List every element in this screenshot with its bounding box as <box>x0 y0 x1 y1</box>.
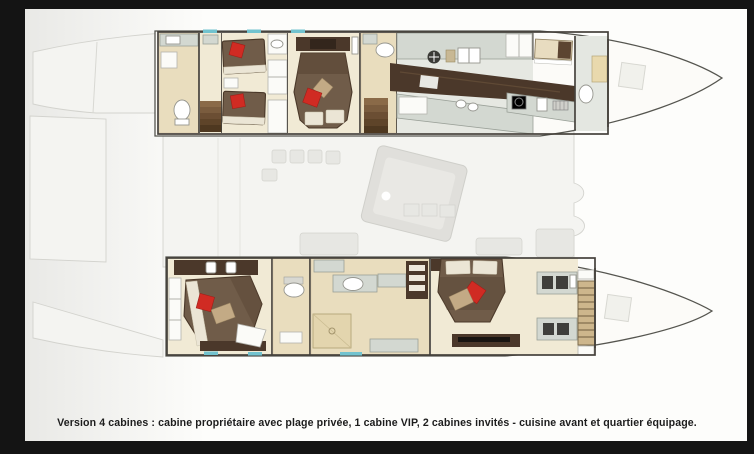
companionway-steps <box>578 270 595 355</box>
toilet-icon <box>579 85 593 103</box>
ghost-helm-seat <box>536 229 574 257</box>
ghost-bench <box>300 233 358 255</box>
sink-icon <box>537 98 547 111</box>
sink-icon <box>456 100 466 108</box>
headboard-panel <box>310 39 336 49</box>
toilet-icon <box>284 283 304 297</box>
floor-plan-image: Version 4 cabines : cabine propriétaire … <box>0 0 754 454</box>
pillow <box>473 261 497 275</box>
sink-icon <box>271 40 283 48</box>
dresser-bottom <box>537 318 577 340</box>
bow-hatch <box>604 294 631 321</box>
crew-head-floor <box>576 36 608 131</box>
double-sink-icon <box>458 48 480 63</box>
twin-bed-2 <box>222 91 265 124</box>
ghost-table-dot <box>382 192 391 201</box>
shelf-unit <box>406 261 428 299</box>
locker <box>203 35 218 44</box>
red-pillow-icon <box>230 94 245 109</box>
side-cabinet <box>169 278 181 340</box>
cabinet <box>280 332 302 343</box>
toilet-tank <box>175 119 189 125</box>
vent-icon <box>553 101 568 110</box>
bow-hatch <box>618 62 645 89</box>
catamaran-plan <box>0 0 754 454</box>
ghost-tables <box>404 204 455 217</box>
cutting-board <box>446 50 455 62</box>
decor-icon <box>206 262 216 273</box>
cabinet <box>399 97 427 114</box>
ghost-bench <box>476 238 522 255</box>
cabinet <box>592 56 607 82</box>
cabinet <box>314 260 344 272</box>
aft-platform <box>30 116 106 262</box>
counter <box>370 339 418 352</box>
sink-icon <box>343 278 363 291</box>
washer-icon <box>512 96 526 109</box>
stairs-icon <box>200 101 222 132</box>
towel-rail-icon <box>352 37 358 54</box>
sink-icon <box>468 103 478 111</box>
shower <box>313 314 351 348</box>
decor-icon <box>226 262 236 273</box>
crew-pillow <box>558 41 572 59</box>
crew-bed <box>534 39 572 65</box>
plan-caption: Version 4 cabines : cabine propriétaire … <box>0 417 754 429</box>
wardrobe-column <box>268 34 287 133</box>
dresser-top <box>537 272 577 294</box>
twin-bed-1 <box>222 39 266 74</box>
stairs-icon <box>364 98 388 133</box>
counter <box>378 274 406 287</box>
hatch <box>419 75 438 89</box>
desk-tv-unit <box>452 334 520 347</box>
cabinet <box>161 52 177 68</box>
duvet-shade <box>297 53 349 74</box>
nightstand <box>224 78 238 88</box>
toilet-icon <box>376 43 394 57</box>
pillow <box>446 261 470 275</box>
sink-icon <box>166 36 180 44</box>
toilet-icon <box>174 100 190 120</box>
cabinet <box>363 34 377 44</box>
stove-icon <box>428 51 441 64</box>
